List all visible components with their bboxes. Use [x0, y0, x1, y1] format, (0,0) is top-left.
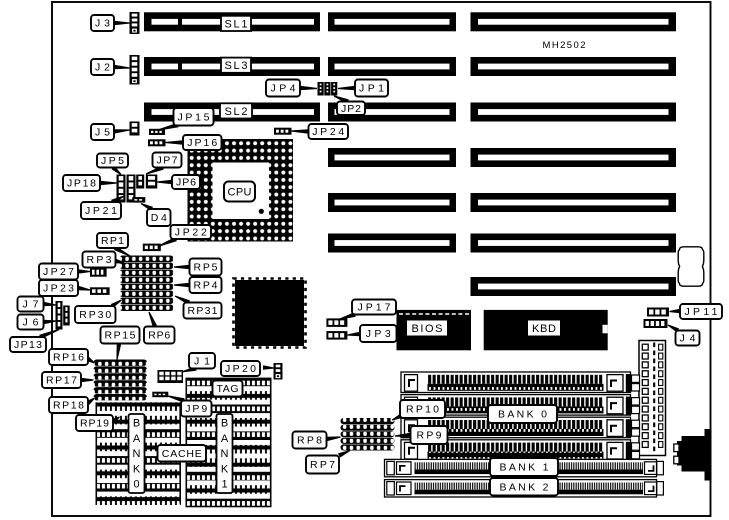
svg-text:JP4: JP4	[271, 83, 296, 95]
svg-text:B: B	[133, 418, 140, 430]
svg-text:RP7: RP7	[310, 459, 335, 471]
svg-text:JP6: JP6	[176, 177, 196, 189]
svg-text:RP15: RP15	[105, 330, 136, 342]
svg-text:SL1: SL1	[225, 18, 248, 30]
svg-text:TAG: TAG	[217, 383, 239, 395]
svg-text:K: K	[133, 463, 141, 475]
svg-text:K: K	[221, 463, 229, 475]
svg-text:RP1: RP1	[101, 235, 124, 247]
svg-text:N: N	[221, 448, 229, 460]
svg-text:RP17: RP17	[46, 375, 77, 387]
svg-text:JP13: JP13	[14, 339, 42, 351]
svg-text:RP31: RP31	[188, 305, 218, 317]
svg-text:RP30: RP30	[79, 309, 111, 321]
svg-text:JP3: JP3	[366, 328, 391, 340]
svg-text:JP1: JP1	[359, 83, 384, 95]
svg-text:SL2: SL2	[225, 106, 248, 118]
svg-text:RP19: RP19	[80, 418, 109, 430]
svg-text:JP5: JP5	[101, 155, 124, 167]
svg-text:RP10: RP10	[406, 404, 439, 416]
svg-text:RP8: RP8	[297, 435, 322, 447]
svg-text:CPU: CPU	[228, 186, 252, 198]
svg-text:KBD: KBD	[532, 323, 556, 335]
svg-text:A: A	[133, 433, 141, 445]
svg-text:RP4: RP4	[194, 280, 218, 292]
svg-text:0: 0	[133, 479, 139, 491]
svg-text:JP7: JP7	[157, 155, 178, 167]
svg-text:RP16: RP16	[53, 352, 84, 364]
svg-text:B: B	[221, 418, 228, 430]
svg-text:BIOS: BIOS	[412, 323, 443, 335]
svg-text:JP2: JP2	[341, 103, 361, 115]
svg-text:RP5: RP5	[194, 262, 218, 274]
svg-text:JP9: JP9	[185, 403, 207, 415]
svg-text:A: A	[221, 433, 229, 445]
svg-text:RP18: RP18	[53, 400, 84, 412]
svg-text:1: 1	[221, 479, 227, 491]
svg-text:CACHE: CACHE	[162, 448, 202, 460]
svg-text:SL3: SL3	[225, 60, 248, 72]
svg-text:RP6: RP6	[148, 330, 170, 342]
svg-text:RP3: RP3	[87, 254, 112, 266]
svg-text:RP9: RP9	[417, 430, 442, 442]
svg-text:N: N	[133, 448, 141, 460]
